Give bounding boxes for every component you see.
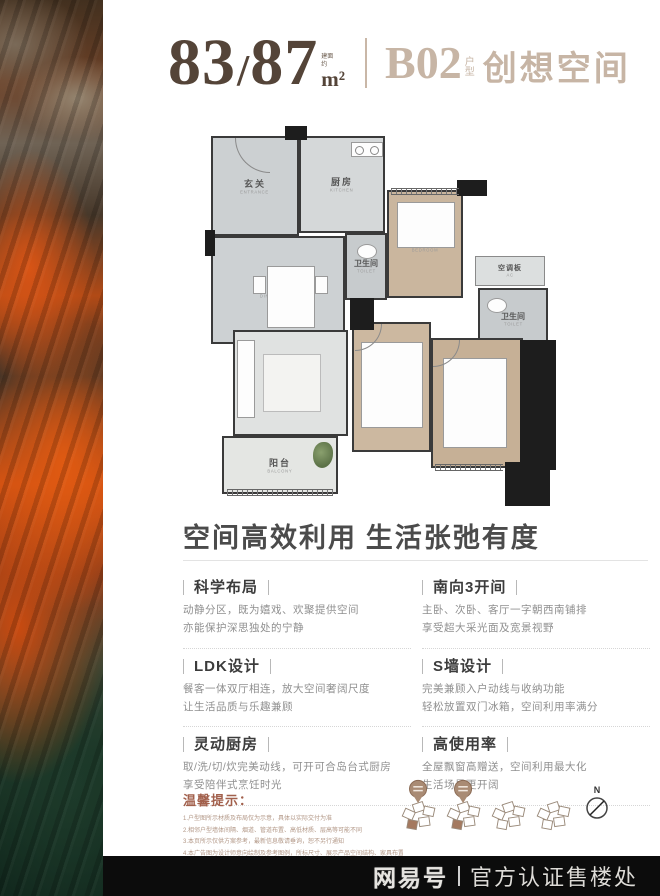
room-label-en: BALCONY (268, 469, 293, 473)
wall-segment (457, 180, 487, 196)
room-label-en: TOILET (504, 322, 523, 326)
stove-icon (351, 142, 383, 157)
toilet-icon (487, 298, 507, 313)
area-unit-block: 建面 约 m² (321, 54, 345, 90)
feature-title: LDK设计 (183, 659, 271, 674)
section-heading: 空间高效利用 生活张弛有度 (183, 516, 650, 555)
feature-south-3-bays: 南向3开间 主卧、次卧、客厅一字朝西南铺排 享受超大采光面及宽景视野 (422, 570, 650, 649)
window-hatch (391, 188, 459, 195)
tip-line-3: 3.本页所示仅供方案参考，最新信息敬请垂询，恕不另行通知 (183, 837, 403, 849)
unit-suffix-char-2: 型 (465, 68, 475, 79)
window-hatch (227, 489, 333, 496)
feature-line: 取/洗/切/炊完美动线，可开可合岛台式厨房 (183, 759, 411, 777)
heading-underline (183, 560, 648, 561)
feature-science-layout: 科学布局 动静分区，既为嬉戏、欢聚提供空间 亦能保护深思独处的宁静 (183, 570, 411, 649)
unit-code: B02 (385, 42, 462, 83)
room-label-en: BEDROOM (412, 248, 439, 252)
footer-label: 官方认证售楼处 (470, 860, 638, 892)
window-hatch (435, 464, 503, 471)
room-label-cn: 卫生间 (354, 258, 378, 269)
location-pin-icon (455, 780, 472, 803)
tips-title: 温馨提示： (183, 790, 403, 809)
compass-north-label: N (584, 786, 610, 795)
feature-line: 餐客一体双厅相连，放大空间奢阔尺度 (183, 681, 411, 699)
keyplan-with-pin-2 (445, 778, 483, 834)
room-label-en: ENTRANCE (241, 190, 270, 194)
footer-divider (458, 866, 460, 886)
bed-icon (397, 202, 455, 248)
feature-line: 轻松放置双门冰箱，空间利用率满分 (422, 699, 650, 717)
area-alt: 87 (250, 36, 318, 90)
room-label-cn: 卫生间 (501, 311, 525, 322)
wall-segment (285, 126, 307, 140)
room-label-en: KITCHEN (330, 189, 353, 193)
header-divider (365, 38, 367, 88)
feature-ldk-design: LDK设计 餐客一体双厅相连，放大空间奢阔尺度 让生活品质与乐趣兼顾 (183, 649, 411, 728)
feature-line: 主卧、次卧、客厅一字朝西南铺排 (422, 602, 650, 620)
room-label-cn: 空调板 (498, 263, 522, 273)
feature-line: 亦能保护深思独处的宁静 (183, 620, 411, 638)
sofa-icon (237, 340, 255, 418)
room-label-cn: 厨房 (331, 175, 353, 188)
keyplan-with-pin-1 (400, 778, 438, 834)
dining-table-icon (267, 266, 315, 328)
area-unit: m² (321, 69, 345, 90)
keyplan-outline-3 (490, 778, 528, 834)
toilet-icon (357, 244, 377, 259)
unit-name: 创想空间 (483, 41, 631, 90)
feature-line: 完美兼顾入户动线与收纳功能 (422, 681, 650, 699)
room-label-cn: 玄关 (244, 177, 266, 190)
unit-code-suffix: 户 型 (465, 58, 475, 79)
area-slash: / (237, 51, 249, 91)
header: 83 / 87 建面 约 m² B02 户 型 创想空间 (168, 36, 654, 90)
chair-icon (315, 276, 328, 294)
abstract-art-strip (0, 0, 103, 896)
keyplan-row: N (400, 774, 590, 834)
netease-logo: 网易号 (373, 859, 448, 893)
feature-title: 科学布局 (183, 580, 269, 595)
unit-title: B02 户 型 创想空间 (385, 37, 631, 90)
wall-segment (205, 230, 215, 256)
feature-s-wall: S墙设计 完美兼顾入户动线与收纳功能 轻松放置双门冰箱，空间利用率满分 (422, 649, 650, 728)
feature-title: 灵动厨房 (183, 737, 269, 752)
feature-title: S墙设计 (422, 659, 503, 674)
area-figures: 83 / 87 建面 约 m² (168, 36, 345, 90)
feature-title: 南向3开间 (422, 580, 517, 595)
feature-title: 高使用率 (422, 737, 508, 752)
room-label-cn: 阳台 (269, 456, 291, 469)
room-ac-panel: 空调板 AC (475, 256, 545, 286)
poster-page: 83 / 87 建面 约 m² B02 户 型 创想空间 玄关 ENTRANCE… (0, 0, 660, 896)
feature-grid: 科学布局 动静分区，既为嬉戏、欢聚提供空间 亦能保护深思独处的宁静 南向3开间 … (183, 570, 650, 806)
compass-icon: N (584, 786, 610, 834)
location-pin-icon (410, 780, 427, 803)
keyplan-outline-4 (535, 778, 573, 834)
wall-segment (505, 462, 550, 506)
bed-icon (361, 342, 423, 428)
feature-line: 动静分区，既为嬉戏、欢聚提供空间 (183, 602, 411, 620)
bed-icon (443, 358, 507, 448)
chair-icon (253, 276, 266, 294)
footer-watermark-bar: 网易号 官方认证售楼处 (103, 856, 660, 896)
room-label-en: AC (506, 274, 513, 278)
area-main: 83 (168, 36, 236, 90)
wall-segment (520, 340, 556, 470)
area-note-1: 建面 (321, 54, 333, 62)
tips-block: 温馨提示： 1.户型图所示材质及布局仅为示意，具体以实际交付为准 2.相邻户型墙… (183, 790, 403, 861)
tip-line-2: 2.相邻户型墙体间隔、烟道、管道布置、高低材质、层高等可能不同 (183, 826, 403, 838)
floor-plan: 玄关 ENTRANCE 厨房 KITCHEN 餐厅 DINING ROOM 卫生… (205, 126, 560, 506)
room-label-en: TOILET (357, 270, 376, 274)
feature-line: 让生活品质与乐趣兼顾 (183, 699, 411, 717)
feature-line: 享受超大采光面及宽景视野 (422, 620, 650, 638)
tip-line-1: 1.户型图所示材质及布局仅为示意，具体以实际交付为准 (183, 814, 403, 826)
rug-icon (263, 354, 321, 412)
